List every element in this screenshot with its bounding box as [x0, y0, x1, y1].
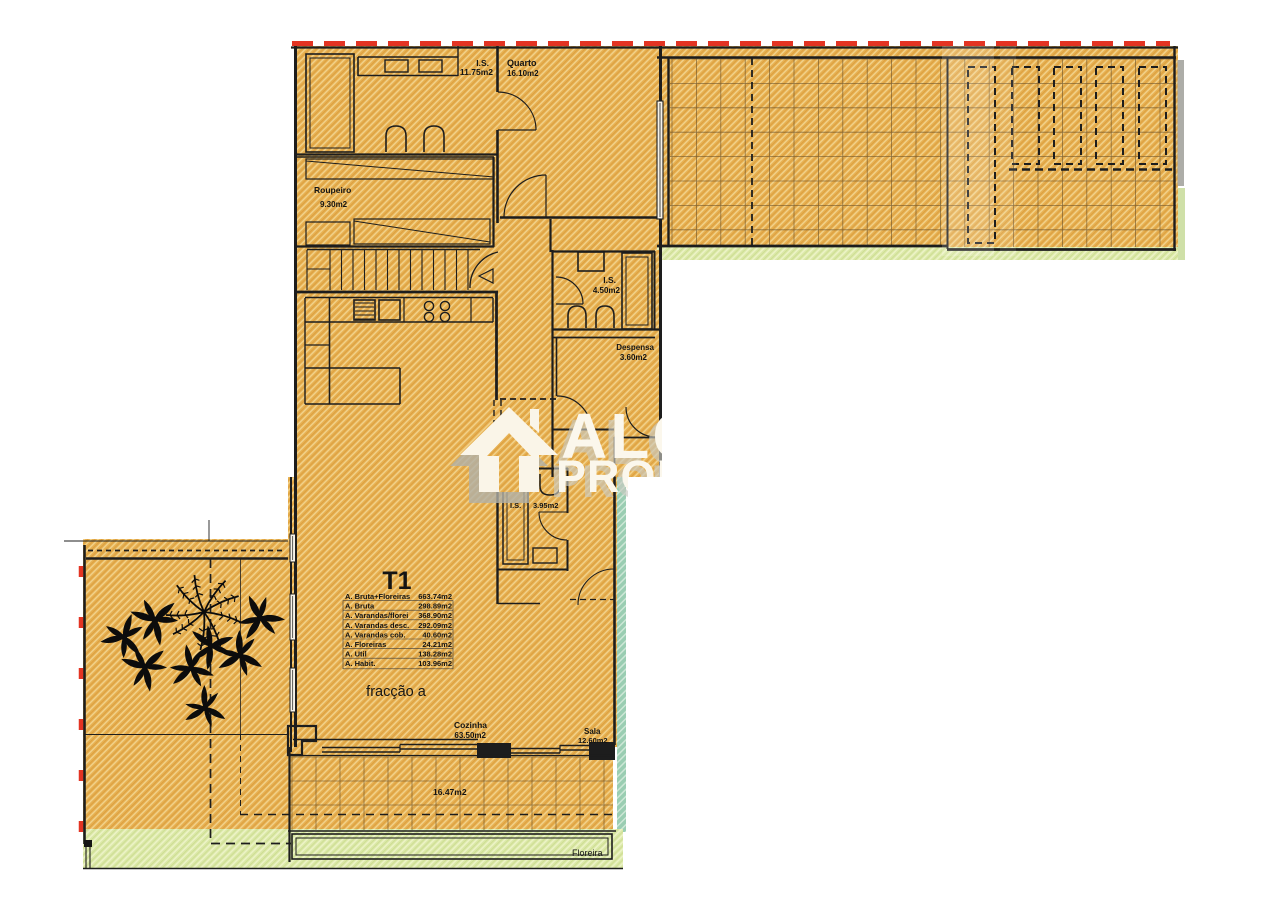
svg-text:11.75m2: 11.75m2 [460, 67, 493, 77]
svg-text:368.90m2: 368.90m2 [418, 611, 452, 620]
svg-text:Sala: Sala [584, 727, 601, 736]
svg-text:103.96m2: 103.96m2 [418, 659, 452, 668]
svg-text:A. Varandas/florei: A. Varandas/florei [345, 611, 408, 620]
svg-text:16.47m2: 16.47m2 [433, 787, 467, 797]
svg-text:9.30m2: 9.30m2 [320, 200, 348, 209]
svg-text:Cozinha: Cozinha [454, 720, 487, 730]
svg-text:A. Varandas desc.: A. Varandas desc. [345, 621, 409, 630]
svg-text:4.50m2: 4.50m2 [593, 286, 621, 295]
svg-text:A. Bruta: A. Bruta [345, 602, 375, 611]
svg-text:A. Floreiras: A. Floreiras [345, 640, 386, 649]
svg-text:A. Bruta+Floreiras: A. Bruta+Floreiras [345, 592, 410, 601]
svg-text:A. Varandas cob.: A. Varandas cob. [345, 630, 405, 639]
svg-text:663.74m2: 663.74m2 [418, 592, 452, 601]
svg-text:fracção a: fracção a [366, 684, 427, 700]
svg-text:138.28m2: 138.28m2 [418, 650, 452, 659]
svg-text:Floreira: Floreira [572, 848, 603, 858]
svg-text:40.60m2: 40.60m2 [422, 630, 452, 639]
svg-text:Quarto: Quarto [507, 58, 537, 68]
svg-text:63.50m2: 63.50m2 [454, 731, 486, 740]
svg-text:292.09m2: 292.09m2 [418, 621, 452, 630]
svg-text:I.S.: I.S. [603, 275, 616, 285]
svg-text:Roupeiro: Roupeiro [314, 185, 351, 195]
svg-text:24.21m2: 24.21m2 [422, 640, 452, 649]
svg-text:A. Habit.: A. Habit. [345, 659, 375, 668]
svg-text:Despensa: Despensa [616, 343, 654, 352]
svg-text:16.10m2: 16.10m2 [507, 69, 539, 78]
svg-text:T1: T1 [382, 567, 411, 595]
svg-text:3.60m2: 3.60m2 [620, 353, 648, 362]
svg-text:A. Util: A. Util [345, 650, 367, 659]
svg-text:12.60m2: 12.60m2 [578, 736, 608, 745]
svg-text:298.89m2: 298.89m2 [418, 602, 452, 611]
